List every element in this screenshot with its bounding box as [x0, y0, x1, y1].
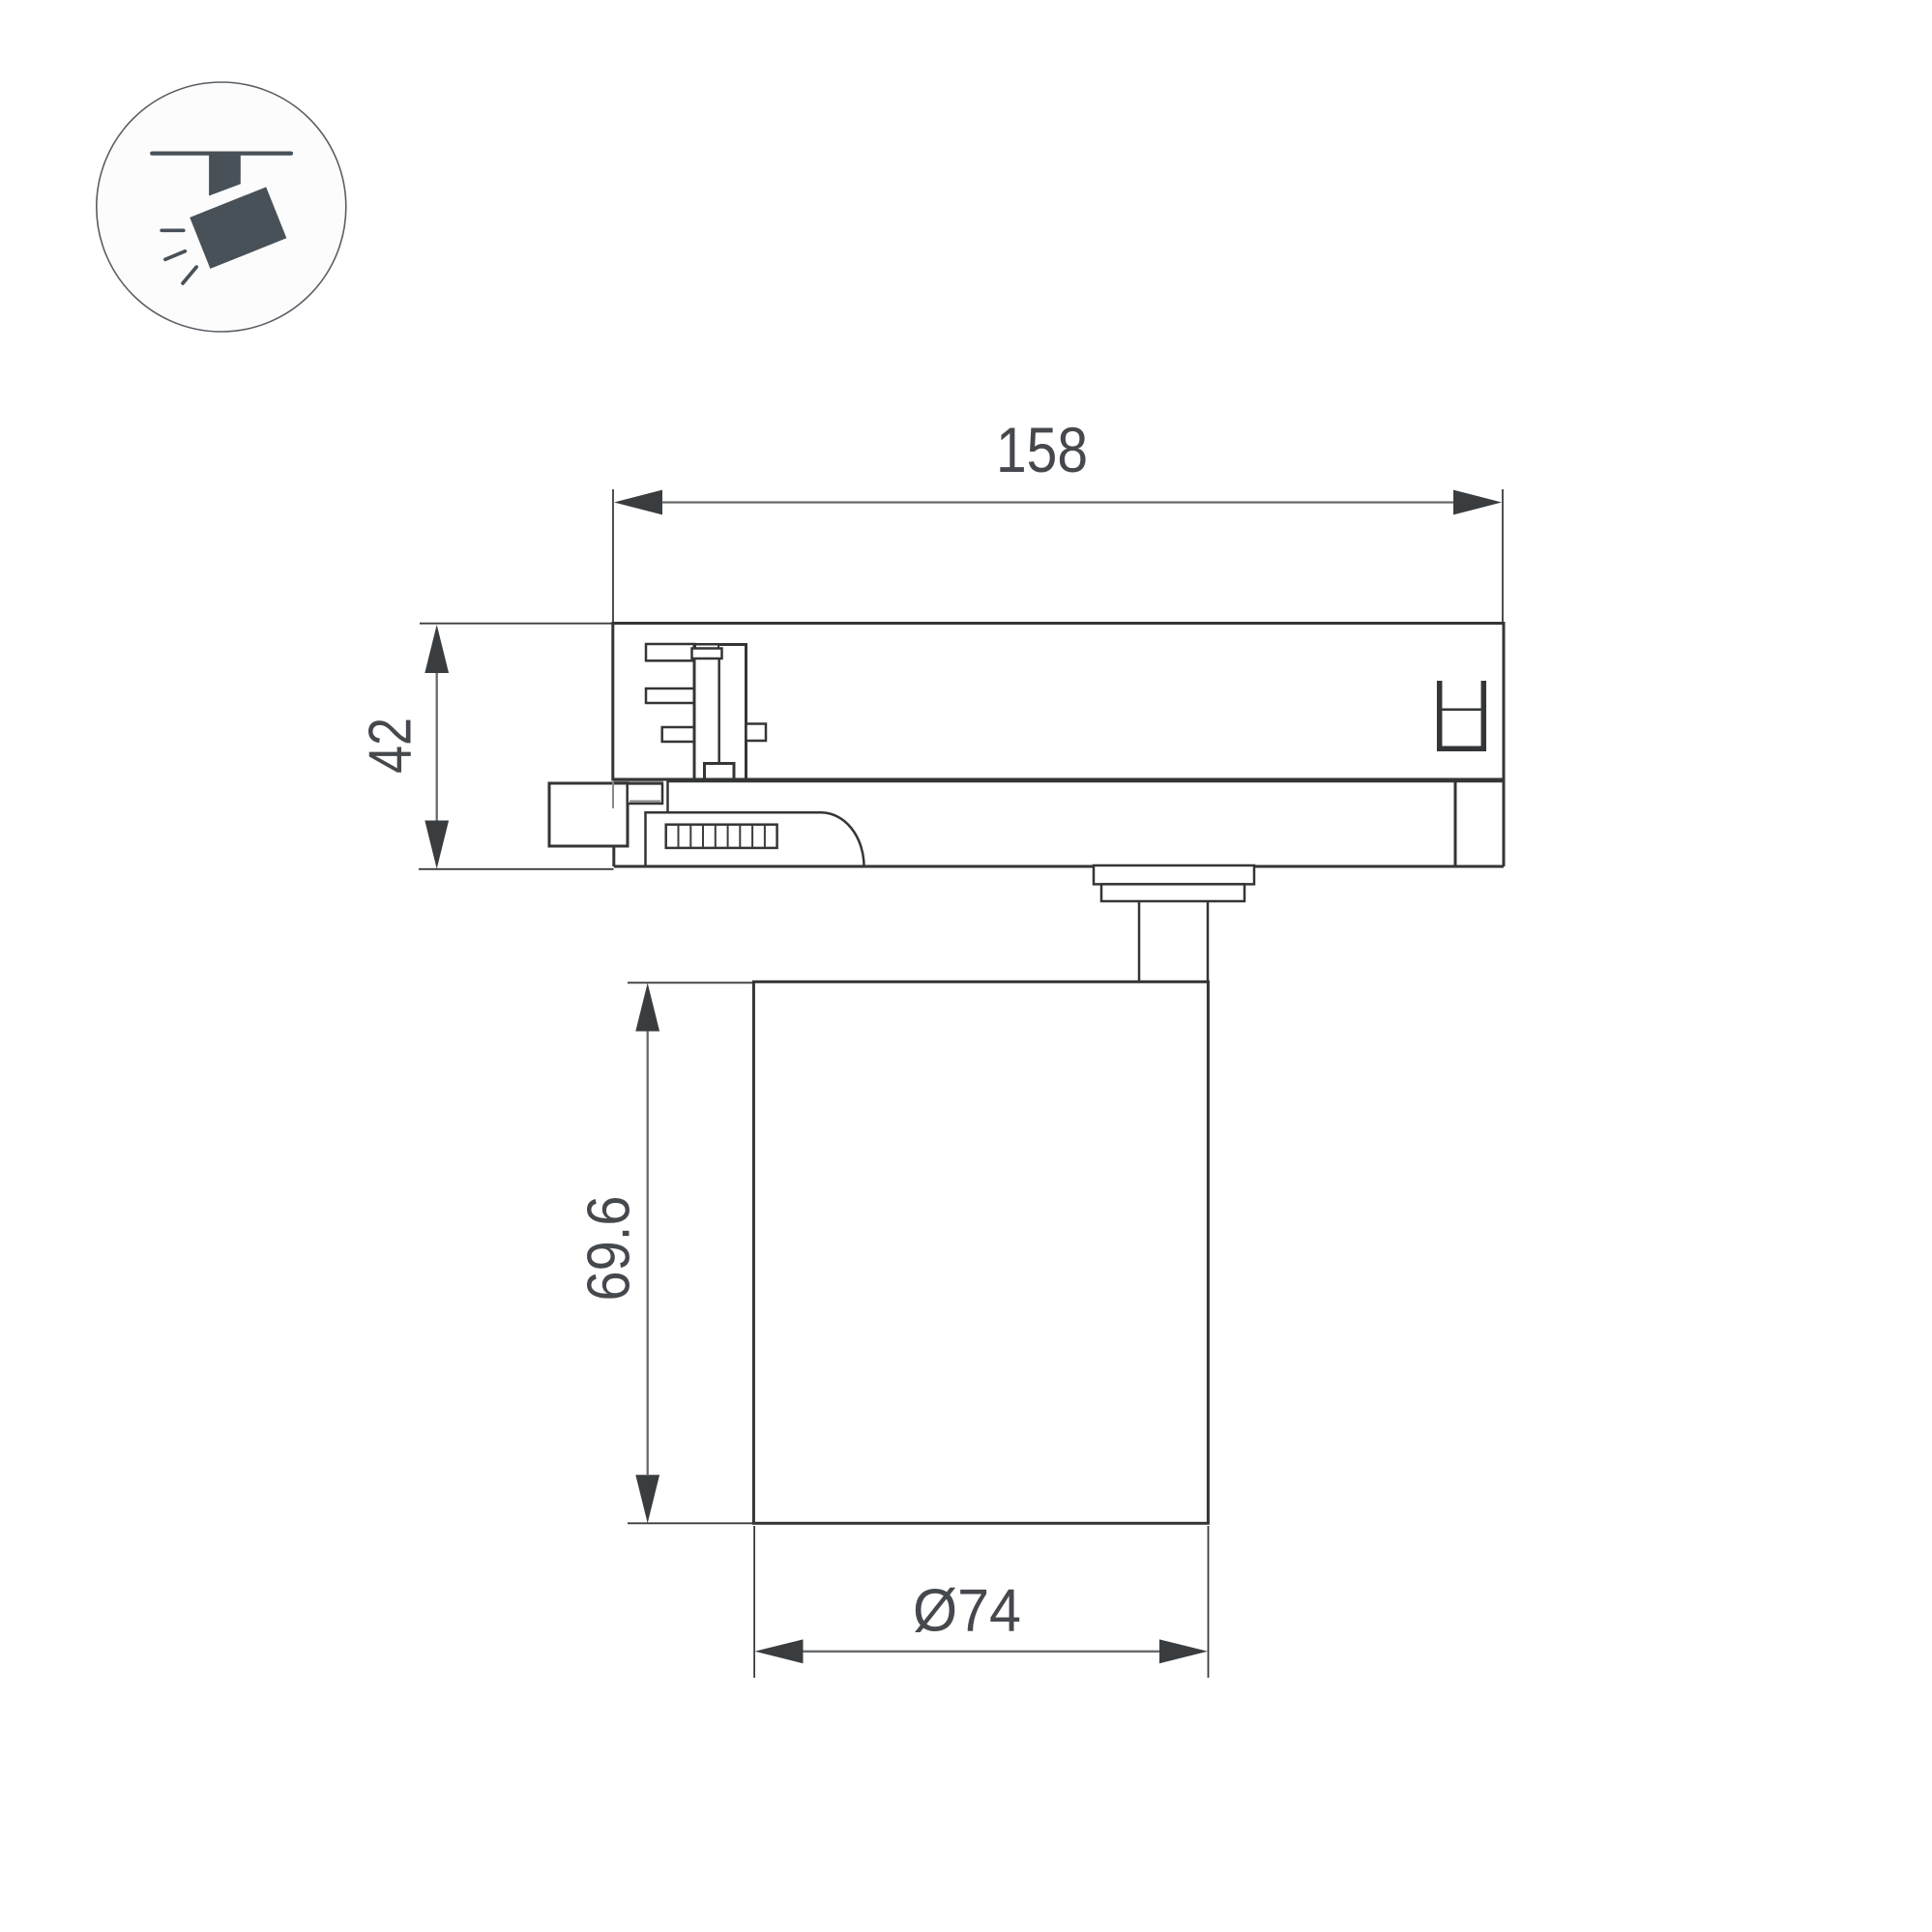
svg-text:158: 158: [996, 414, 1088, 485]
svg-text:Ø74: Ø74: [913, 1578, 1021, 1645]
svg-text:42: 42: [358, 717, 424, 774]
svg-text:69.6: 69.6: [576, 1196, 643, 1302]
